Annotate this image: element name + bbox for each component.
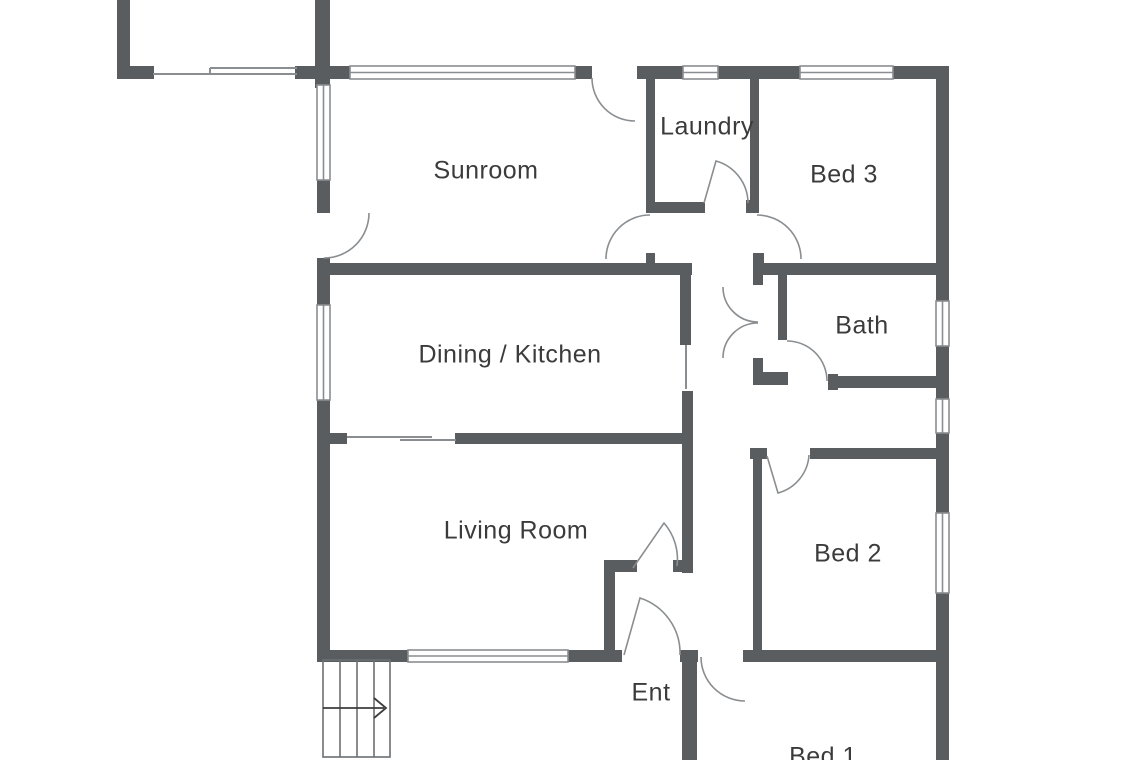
wall-hall-left-upper	[680, 275, 691, 345]
wall-bed2-top	[810, 448, 937, 459]
wall-entry-vertical	[682, 650, 697, 760]
floor-plan: Sunroom Laundry Bed 3 Dining / Kitchen B…	[0, 0, 1140, 760]
door-bed1	[701, 657, 745, 701]
door-sunroom-top	[592, 78, 635, 121]
door-bed2	[767, 455, 809, 493]
room-label-living-room: Living Room	[444, 517, 588, 546]
wall-dining-living	[330, 433, 347, 444]
door-bath	[787, 341, 827, 381]
wall-dining-top	[330, 263, 692, 275]
wall-bath-bottom	[838, 376, 937, 388]
room-label-bed1: Bed 1	[789, 743, 857, 760]
floorplan-drawing	[0, 0, 1140, 760]
window-laundry-top	[683, 66, 718, 79]
room-label-entry: Ent	[631, 679, 670, 708]
wall-laundry-bottom	[646, 202, 705, 213]
wall-right	[936, 66, 949, 301]
wall-bed3-door-jamb	[753, 253, 764, 266]
door-bed3	[757, 215, 801, 259]
wall-top-junction	[295, 66, 351, 79]
wall-right	[936, 593, 949, 760]
wall-top	[575, 66, 592, 79]
wall-top	[637, 66, 683, 79]
windows-layer	[317, 66, 949, 662]
wall-hall-right-mid	[753, 358, 763, 374]
window-bed2-right	[936, 513, 949, 593]
door-sunroom-hall	[606, 215, 650, 259]
door-hall-closet-upper	[723, 287, 758, 322]
wall-right	[936, 433, 949, 513]
window-hall-right	[936, 399, 949, 433]
wall-hall-left-lower	[682, 391, 693, 573]
door-hall-closet-lower	[723, 323, 758, 358]
wall-left	[317, 180, 330, 213]
wall-porch-horizontal	[117, 66, 154, 79]
room-label-bed3: Bed 3	[810, 161, 878, 190]
door-front-entry	[624, 598, 680, 655]
wall-living-se-jamb	[673, 560, 692, 572]
window-dining-left	[317, 305, 330, 400]
wall-sunroom-door-jamb	[646, 253, 655, 265]
walls-layer	[117, 0, 949, 760]
room-label-bath: Bath	[835, 312, 888, 341]
wall-laundry-left	[646, 79, 655, 213]
wall-living-right	[604, 560, 615, 662]
window-sunroom-left	[317, 85, 330, 180]
window-living-bottom	[408, 650, 568, 662]
wall-hall-right-upper	[753, 266, 763, 285]
door-living-ent	[633, 523, 677, 568]
wall-bed1-top	[743, 650, 937, 662]
wall-closet-right	[778, 266, 787, 340]
window-sunroom-top	[350, 66, 575, 79]
room-label-dining-kitchen: Dining / Kitchen	[418, 341, 601, 370]
wall-closet-bottom	[753, 372, 788, 385]
window-bath-right	[936, 301, 949, 346]
stairs-direction-arrow	[323, 698, 386, 718]
wall-left	[317, 79, 330, 85]
wall-left	[317, 400, 330, 662]
stairs	[323, 660, 390, 757]
window-bed3-top	[800, 66, 893, 79]
room-label-bed2: Bed 2	[814, 540, 882, 569]
door-laundry	[704, 161, 748, 203]
wall-right	[936, 346, 949, 399]
wall-bed2-left	[753, 448, 762, 652]
wall-top	[718, 66, 800, 79]
wall-left	[317, 258, 330, 305]
door-sunroom-left	[324, 213, 369, 258]
room-label-sunroom: Sunroom	[434, 157, 539, 186]
wall-dining-living	[455, 433, 692, 444]
wall-bath-door-jamb	[828, 374, 838, 390]
room-label-laundry: Laundry	[660, 113, 754, 142]
